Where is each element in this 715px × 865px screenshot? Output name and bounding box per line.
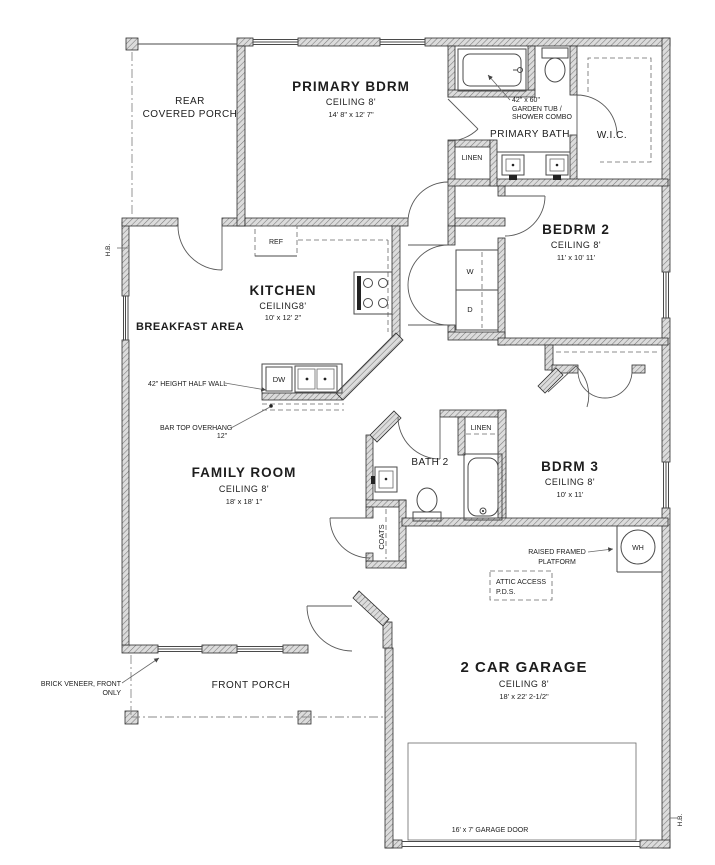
laundry-fixtures [456,250,498,330]
attic-access-note: ATTIC ACCESS [496,579,546,586]
door-bedrm2 [505,196,545,236]
porch-post [125,711,138,724]
garden-tub-note1: 42" x 60" [512,97,540,104]
garden-tub-note2: GARDEN TUB / [512,106,562,113]
kitchen-label: KITCHEN [250,283,317,298]
leader-platform [588,549,613,552]
dw-label: DW [273,375,286,384]
door-wic [577,95,617,135]
garage-label: 2 CAR GARAGE [460,659,587,676]
bar-top-note: BAR TOP OVERHANG [160,425,232,432]
door-primary-bath [448,99,478,141]
door-bath2 [398,417,440,459]
window [237,645,283,653]
kitchen-dims: 10' x 12' 2" [265,313,302,322]
door-bedrm3-closet [578,373,632,398]
half-wall [262,393,342,400]
bar-top-note2: 12" [217,433,228,440]
bedrm3-dims: 10' x 11' [557,490,584,499]
breakfast-area-label: BREAKFAST AREA [136,321,244,333]
bath2-sink-icon [371,467,397,492]
bedrm3-ceiling: CEILING 8' [545,477,595,487]
brick-veneer-note: BRICK VENEER, FRONT [41,681,122,688]
wh-label: WH [632,545,644,552]
window [662,272,670,318]
garage-dims: 18' x 22' 2-1/2" [499,692,549,701]
hose-bib-left-label: H.B. [105,243,112,256]
coats-label: COATS [377,524,386,549]
door-coats [330,518,370,558]
primary-bdrm-ceiling: CEILING 8' [326,97,376,107]
bar-overhang-dashed [262,404,344,410]
bath2-label: BATH 2 [411,457,448,468]
garage-ceiling: CEILING 8' [499,679,549,689]
floor-plan: REAR COVERED PORCH PRIMARY BDRM CEILING … [0,0,715,865]
primary-bath-label: PRIMARY BATH [490,129,570,140]
kitchen-ceiling: CEILING8' [259,301,306,311]
linen-primary-label: LINEN [462,155,483,162]
garage-door-label: 16' x 7' GARAGE DOOR [452,827,529,834]
floor-plan-drawing: REAR COVERED PORCH PRIMARY BDRM CEILING … [0,0,715,865]
hose-bib-right-label: H.B. [677,813,684,826]
rear-porch-label2: COVERED PORCH [143,109,238,120]
raised-platform-note2: PLATFORM [538,559,576,566]
linen-hall-label: LINEN [471,425,492,432]
window [158,645,202,653]
leader-bar-top [231,407,270,428]
toilet-icon [542,48,568,82]
brick-veneer-note2: ONLY [102,690,121,697]
raised-platform-note: RAISED FRAMED [528,549,586,556]
front-porch-label: FRONT PORCH [212,680,291,691]
angled-wall-bath2 [370,411,401,442]
window [122,296,129,340]
bath2-fixtures [371,434,502,521]
angled-half-wall [336,333,403,400]
rear-porch-label: REAR [175,96,205,107]
leader-half-wall [225,383,266,390]
ref-label: REF [269,239,283,246]
leader-brick [122,658,159,683]
bedrm2-ceiling: CEILING 8' [551,240,601,250]
door-laundry-bifold [408,245,448,325]
window [662,462,670,508]
door-primary-bdrm [408,182,448,222]
primary-bdrm-label: PRIMARY BDRM [292,79,410,94]
bath2-tub-icon [464,454,502,520]
door-breakfast [178,226,222,270]
window [380,38,425,46]
bedrm2-dims: 11' x 10' 11' [557,253,596,262]
bedrm3-label: BDRM 3 [541,459,599,474]
porch-post [298,711,311,724]
bath2-toilet-icon [413,488,441,521]
misc-lines [386,352,662,600]
washer-label: W [466,267,474,276]
garden-tub-icon [458,49,526,91]
dryer-label: D [467,305,473,314]
stove-icon [354,272,392,314]
angled-wall-entry [353,591,389,626]
wic-shelf-dashed [588,58,651,162]
porch-post [126,38,138,50]
leader-lines [117,75,677,818]
walls [122,38,670,848]
wic-label: W.I.C. [597,130,627,141]
family-room-dims: 18' x 18' 1" [226,497,263,506]
primary-bdrm-dims: 14' 8" x 12' 7" [328,110,374,119]
window [253,38,298,46]
door-front [307,606,352,651]
family-room-ceiling: CEILING 8' [219,484,269,494]
family-room-label: FAMILY ROOM [192,465,297,480]
bedrm2-label: BEDRM 2 [542,222,610,237]
attic-access-note2: P.D.S. [496,589,515,596]
vanity-sinks-icon [497,152,570,180]
garden-tub-note3: SHOWER COMBO [512,114,572,121]
half-wall-note: 42" HEIGHT HALF WALL [148,381,227,388]
